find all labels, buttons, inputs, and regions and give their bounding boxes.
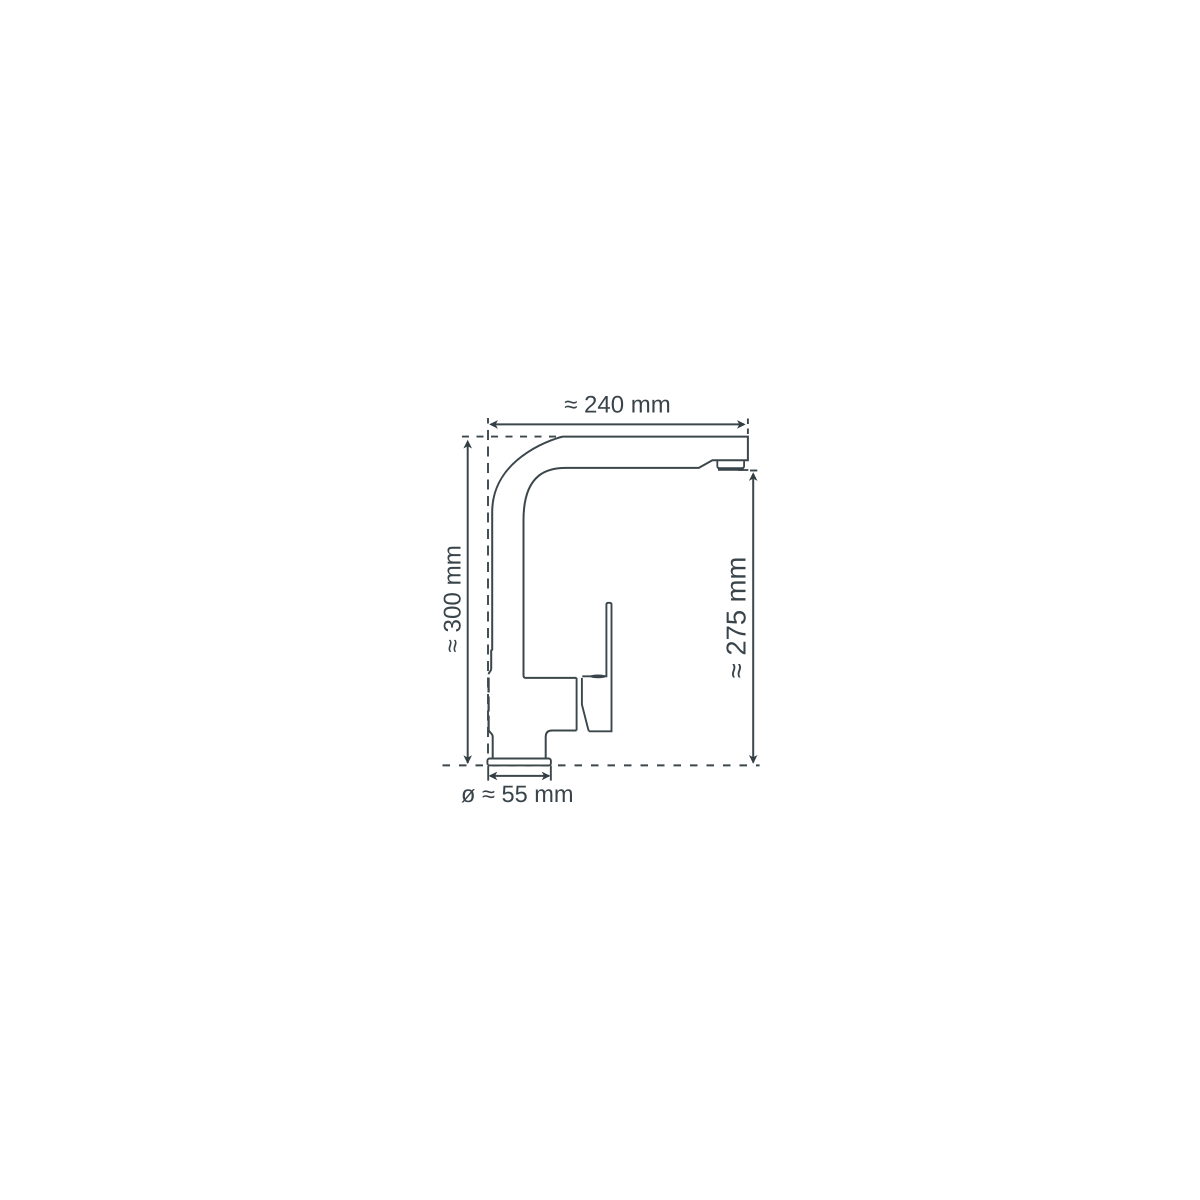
- svg-text:ø ≈ 55 mm: ø ≈ 55 mm: [461, 782, 574, 808]
- svg-text:≈ 240 mm: ≈ 240 mm: [564, 392, 671, 419]
- svg-text:≈ 275 mm: ≈ 275 mm: [720, 557, 751, 679]
- svg-text:≈ 300 mm: ≈ 300 mm: [439, 545, 466, 652]
